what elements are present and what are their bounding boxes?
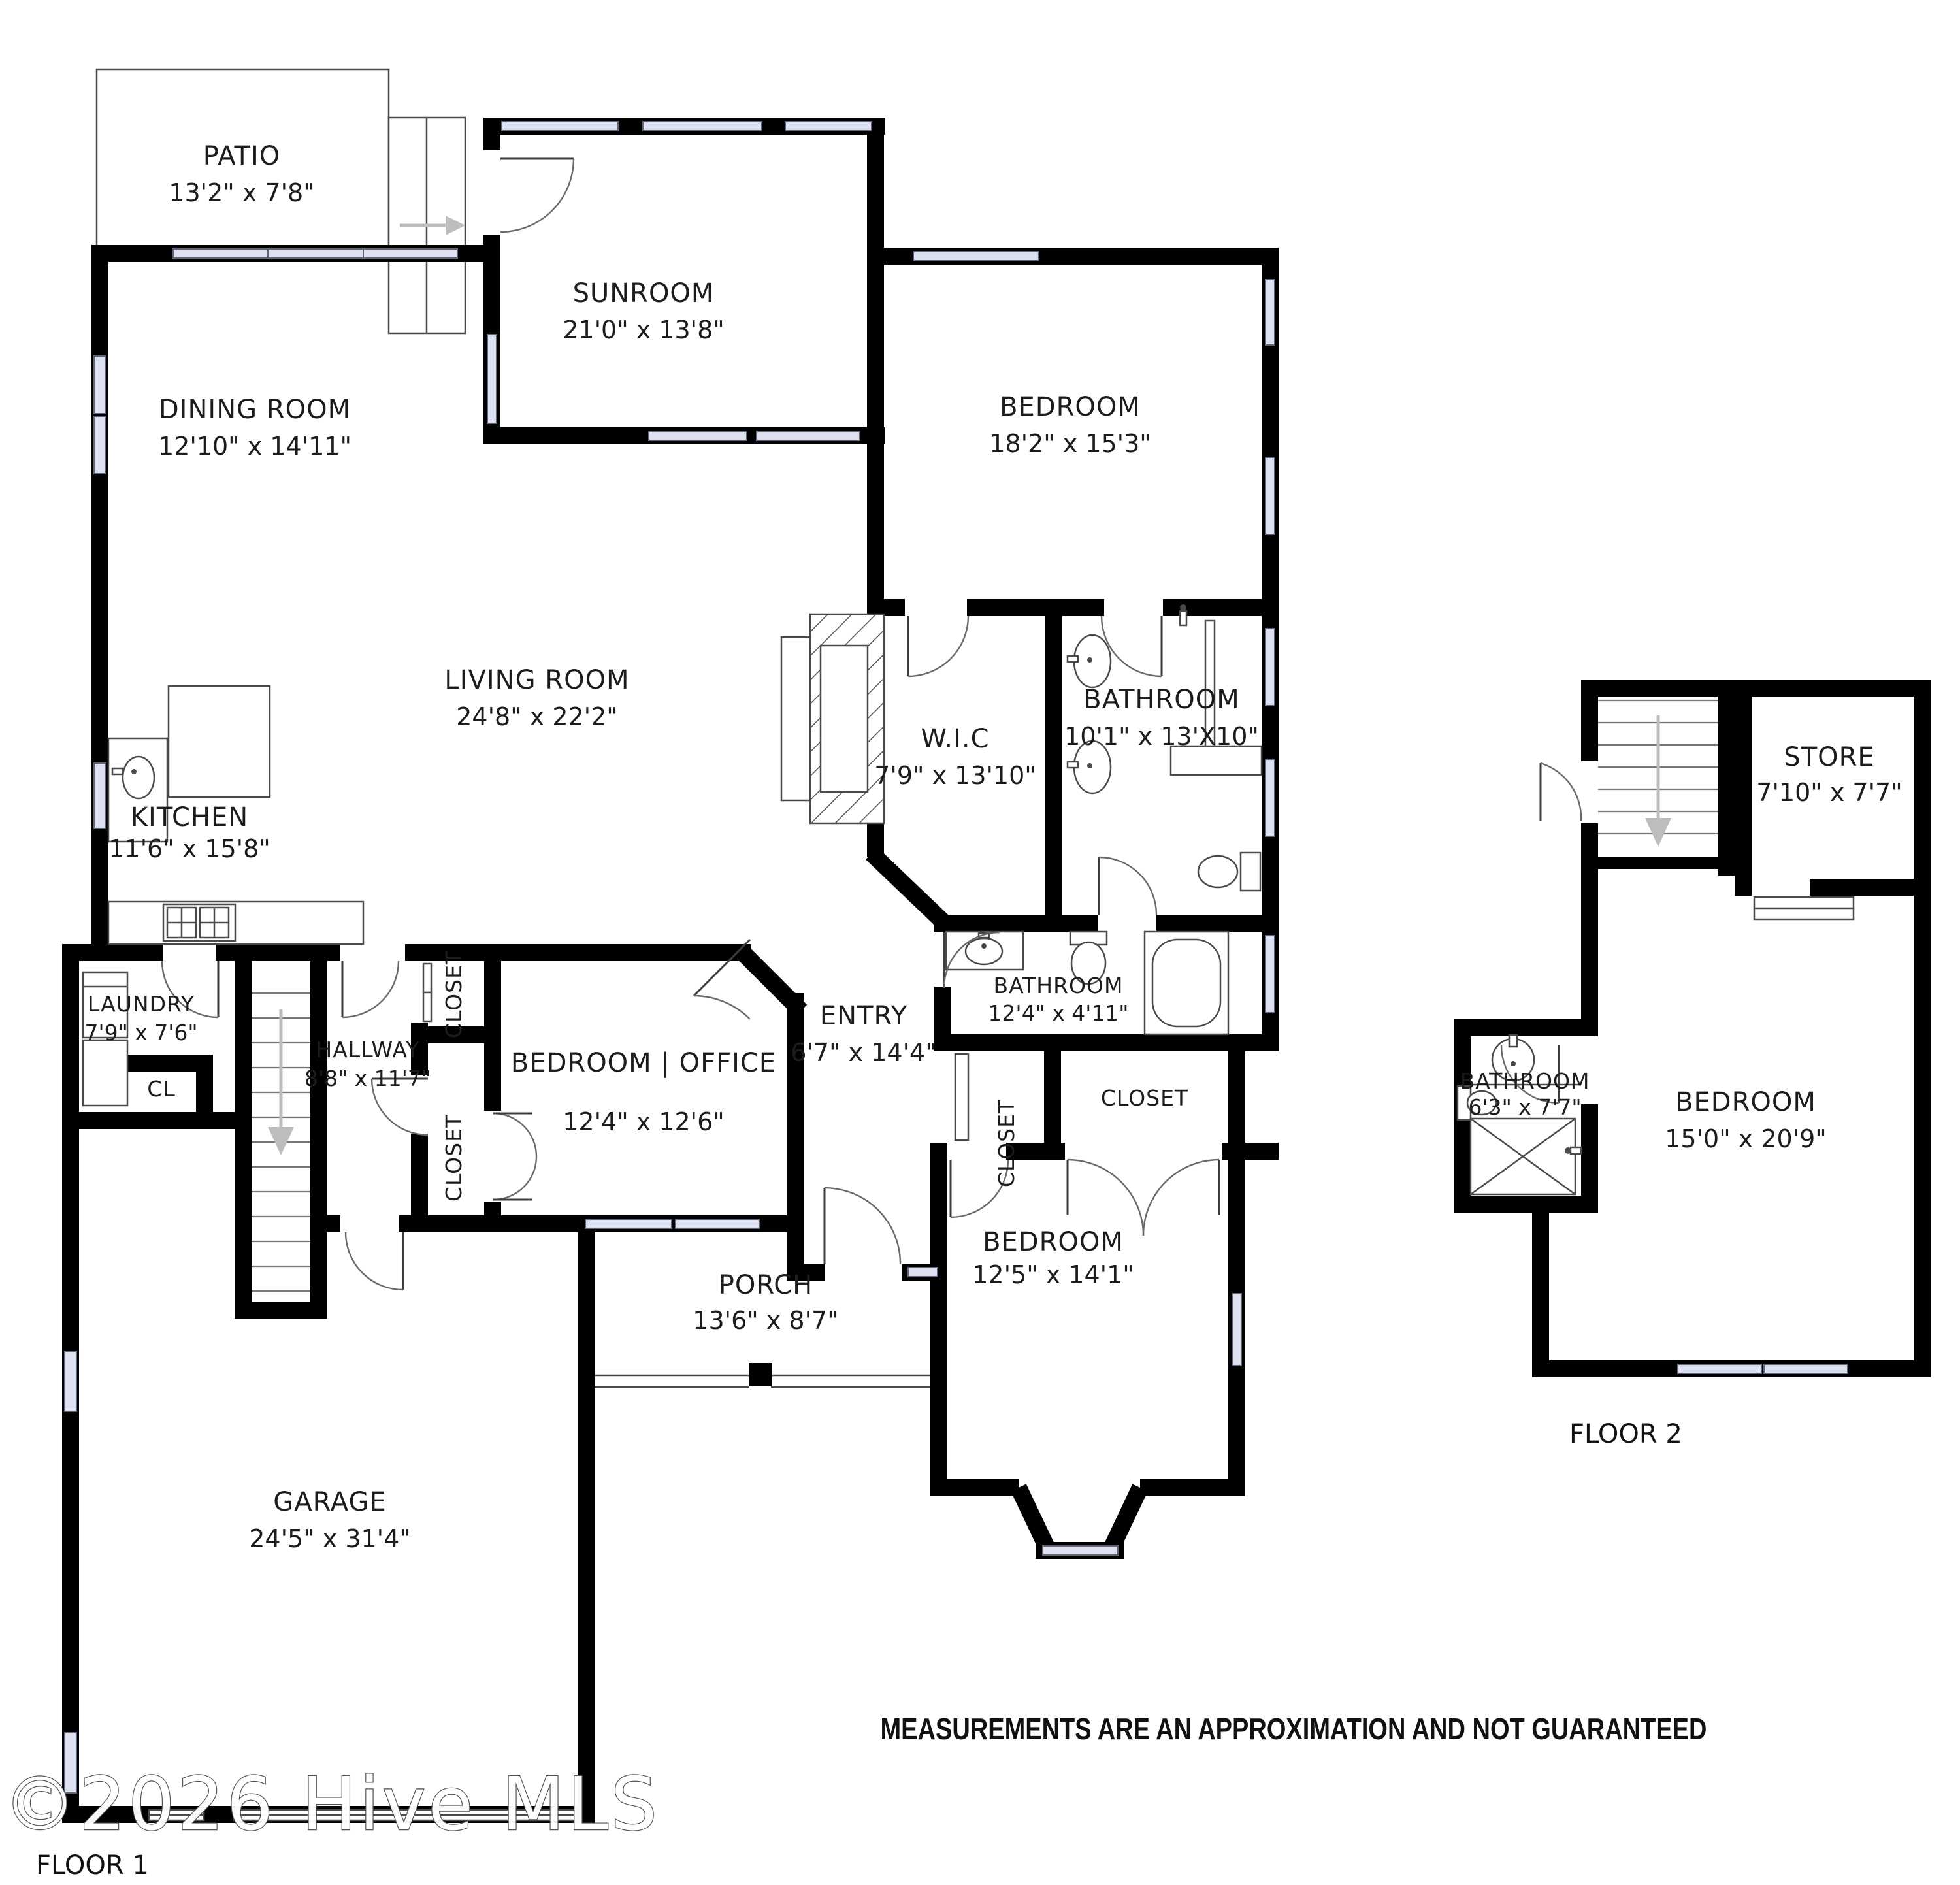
room-bathroom-entry-label: BATHROOM 12'4" x 4'11": [988, 973, 1129, 1026]
door-swing: [825, 1188, 900, 1264]
svg-text:SUNROOM: SUNROOM: [573, 278, 715, 308]
svg-text:6'7" x 14'4": 6'7" x 14'4": [791, 1038, 936, 1067]
door-swing: [1068, 1160, 1219, 1236]
floorplan-page: PATIO 13'2" x 7'8" SUNROOM 21'0" x 13'8"…: [0, 0, 1960, 1885]
porch-edge: [595, 1363, 930, 1387]
window: [1764, 1364, 1848, 1373]
svg-text:18'2" x 15'3": 18'2" x 15'3": [989, 429, 1151, 458]
svg-text:LIVING ROOM: LIVING ROOM: [444, 665, 629, 695]
window: [487, 335, 497, 423]
room-bathroom-master-label: BATHROOM 10'1" x 13'X10": [1064, 685, 1259, 751]
room-bedroom-top-label: BEDROOM 18'2" x 15'3": [989, 392, 1151, 458]
shower-head-icon: [1565, 1147, 1581, 1154]
door-swing: [500, 159, 574, 232]
room-bedroom-front-label: BEDROOM 12'5" x 14'1": [972, 1227, 1134, 1289]
svg-text:13'2" x 7'8": 13'2" x 7'8": [169, 178, 314, 207]
svg-text:BEDROOM: BEDROOM: [983, 1227, 1124, 1257]
svg-text:CLOSET: CLOSET: [441, 951, 466, 1038]
svg-text:7'9" x 7'6": 7'9" x 7'6": [85, 1020, 198, 1045]
stairs-floor2: [1598, 700, 1718, 847]
svg-text:24'5" x 31'4": 24'5" x 31'4": [249, 1524, 411, 1553]
window: [1232, 1294, 1241, 1366]
room-bedroom-office-label: BEDROOM | OFFICE 12'4" x 12'6": [511, 1048, 776, 1136]
window: [1266, 759, 1275, 836]
svg-text:12'4" x 12'6": 12'4" x 12'6": [563, 1107, 725, 1136]
stairs-down-arrow-icon: [268, 1009, 294, 1155]
svg-text:STORE: STORE: [1784, 742, 1874, 772]
floor1-caption: FLOOR 1: [36, 1850, 149, 1880]
window: [1266, 457, 1275, 534]
svg-text:12'4" x 4'11": 12'4" x 4'11": [988, 1000, 1129, 1026]
svg-text:LAUNDRY: LAUNDRY: [88, 991, 195, 1017]
svg-text:7'9" x 13'10": 7'9" x 13'10": [874, 761, 1036, 790]
window: [1266, 936, 1275, 1013]
room-dining-label: DINING ROOM 12'10" x 14'11": [158, 395, 351, 461]
shower-head-icon: [1180, 604, 1186, 625]
svg-text:BEDROOM | OFFICE: BEDROOM | OFFICE: [511, 1048, 776, 1078]
svg-text:24'8" x 22'2": 24'8" x 22'2": [456, 702, 618, 731]
floor2-caption: FLOOR 2: [1569, 1419, 1682, 1449]
kitchen-island: [169, 686, 270, 797]
closet-small-label: CLOSET: [994, 1100, 1019, 1187]
room-store-label: STORE 7'10" x 7'7": [1756, 742, 1902, 807]
door-swing: [493, 1113, 536, 1200]
window: [913, 252, 1039, 261]
store-shelf: [1754, 897, 1854, 919]
svg-text:BATHROOM: BATHROOM: [994, 973, 1124, 998]
bathtub-icon: [1145, 932, 1228, 1034]
svg-text:11'6" x 15'8": 11'6" x 15'8": [108, 834, 270, 863]
svg-text:CL: CL: [147, 1076, 175, 1102]
window: [649, 431, 747, 440]
svg-text:BEDROOM: BEDROOM: [1675, 1087, 1816, 1117]
svg-text:KITCHEN: KITCHEN: [131, 802, 248, 832]
floor1-plan: PATIO 13'2" x 7'8" SUNROOM 21'0" x 13'8"…: [62, 69, 1279, 1823]
door-swing: [346, 1232, 403, 1290]
window: [502, 122, 618, 131]
room-patio-label: PATIO 13'2" x 7'8": [169, 141, 314, 207]
window: [94, 416, 106, 474]
window: [65, 1351, 76, 1411]
svg-text:15'0" x 20'9": 15'0" x 20'9": [1665, 1124, 1827, 1153]
svg-text:10'1" x 13'X10": 10'1" x 13'X10": [1064, 722, 1259, 751]
door-swing: [908, 616, 968, 676]
room-sunroom-label: SUNROOM 21'0" x 13'8": [563, 278, 725, 344]
room-entry-label: ENTRY 6'7" x 14'4": [791, 1001, 936, 1067]
floorplan-image: PATIO 13'2" x 7'8" SUNROOM 21'0" x 13'8"…: [0, 0, 1960, 1885]
closet-door: [955, 1054, 968, 1140]
svg-text:7'10" x 7'7": 7'10" x 7'7": [1756, 778, 1902, 807]
door-swing: [342, 961, 399, 1017]
room-living-label: LIVING ROOM 24'8" x 22'2": [444, 665, 629, 731]
svg-text:ENTRY: ENTRY: [820, 1001, 907, 1031]
room-wic-label: W.I.C 7'9" x 13'10": [874, 724, 1036, 790]
svg-text:12'5" x 14'1": 12'5" x 14'1": [972, 1260, 1134, 1289]
svg-text:GARAGE: GARAGE: [273, 1487, 386, 1517]
window: [585, 1219, 672, 1228]
svg-text:13'6" x 8'7": 13'6" x 8'7": [693, 1306, 838, 1335]
svg-text:PATIO: PATIO: [203, 141, 281, 171]
watermark: ©2026 Hive MLS: [3, 1762, 660, 1847]
svg-text:PORCH: PORCH: [719, 1270, 813, 1300]
room-bedroom2-label: BEDROOM 15'0" x 20'9": [1665, 1087, 1827, 1153]
window: [1043, 1546, 1118, 1555]
svg-text:CLOSET: CLOSET: [441, 1114, 466, 1202]
closet-door: [423, 964, 431, 1021]
svg-text:BATHROOM: BATHROOM: [1460, 1068, 1590, 1094]
stairs-down-arrow-icon: [1645, 715, 1671, 847]
window: [1266, 280, 1275, 345]
closet-large-label: CLOSET: [1101, 1085, 1188, 1111]
door-swing: [1541, 763, 1581, 821]
svg-text:W.I.C: W.I.C: [921, 724, 989, 754]
window: [757, 431, 860, 440]
porch-post: [749, 1363, 772, 1386]
closet-hall-bottom-label: CLOSET: [441, 1114, 466, 1202]
window: [94, 356, 106, 414]
door-swing: [1099, 857, 1156, 915]
window: [1266, 629, 1275, 706]
closet-hall-top-label: CLOSET: [441, 951, 466, 1038]
window: [785, 122, 872, 131]
disclaimer-text: MEASUREMENTS ARE AN APPROXIMATION AND NO…: [881, 1712, 1707, 1746]
window: [1678, 1364, 1761, 1373]
stove-icon: [163, 904, 235, 941]
svg-text:CLOSET: CLOSET: [1101, 1085, 1188, 1111]
room-cl-label: CL: [147, 1076, 175, 1102]
svg-text:8'8" x 11'7": 8'8" x 11'7": [304, 1066, 431, 1091]
shower-icon: [1471, 1119, 1581, 1194]
window: [676, 1219, 759, 1228]
svg-text:HALLWAY: HALLWAY: [316, 1037, 419, 1062]
stairs-floor1: [252, 993, 310, 1291]
svg-text:BEDROOM: BEDROOM: [1000, 392, 1141, 422]
window: [94, 763, 106, 828]
window: [643, 122, 762, 131]
svg-text:BATHROOM: BATHROOM: [1083, 685, 1239, 715]
window: [173, 249, 457, 258]
toilet-icon: [1198, 853, 1260, 891]
sink-icon: [1068, 635, 1111, 687]
svg-text:12'10" x 14'11": 12'10" x 14'11": [158, 432, 351, 461]
fireplace: [781, 614, 884, 823]
room-bathroom2-label: BATHROOM 6'3" x 7'7": [1460, 1068, 1590, 1120]
svg-text:21'0" x 13'8": 21'0" x 13'8": [563, 316, 725, 344]
room-garage-label: GARAGE 24'5" x 31'4": [249, 1487, 411, 1553]
svg-text:CLOSET: CLOSET: [994, 1100, 1019, 1187]
window: [908, 1268, 938, 1277]
svg-text:DINING ROOM: DINING ROOM: [159, 395, 351, 425]
svg-text:6'3" x 7'7": 6'3" x 7'7": [1469, 1094, 1582, 1120]
